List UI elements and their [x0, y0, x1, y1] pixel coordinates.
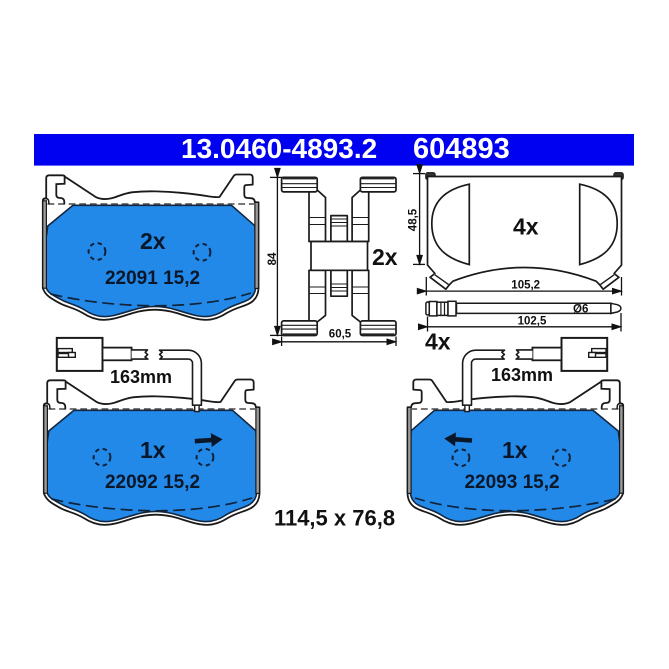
- svg-text:48,5: 48,5: [408, 208, 420, 231]
- svg-text:Ø6: Ø6: [573, 304, 588, 316]
- svg-text:163mm: 163mm: [491, 365, 553, 385]
- svg-text:22093 15,2: 22093 15,2: [464, 472, 559, 493]
- svg-text:22091 15,2: 22091 15,2: [105, 268, 200, 289]
- svg-text:1x: 1x: [140, 437, 166, 463]
- svg-text:102,5: 102,5: [518, 316, 547, 328]
- svg-text:84: 84: [267, 252, 279, 265]
- svg-text:163mm: 163mm: [110, 367, 172, 387]
- svg-text:114,5 x 76,8: 114,5 x 76,8: [274, 506, 395, 531]
- svg-text:604893: 604893: [413, 133, 510, 165]
- svg-text:4x: 4x: [513, 214, 539, 240]
- svg-text:2x: 2x: [372, 244, 398, 270]
- svg-text:105,2: 105,2: [511, 280, 540, 292]
- svg-text:2x: 2x: [140, 228, 166, 254]
- svg-text:4x: 4x: [425, 329, 451, 355]
- svg-text:13.0460-4893.2: 13.0460-4893.2: [181, 133, 377, 164]
- svg-text:1x: 1x: [502, 437, 528, 463]
- svg-text:60,5: 60,5: [329, 329, 352, 341]
- svg-text:22092 15,2: 22092 15,2: [105, 472, 200, 493]
